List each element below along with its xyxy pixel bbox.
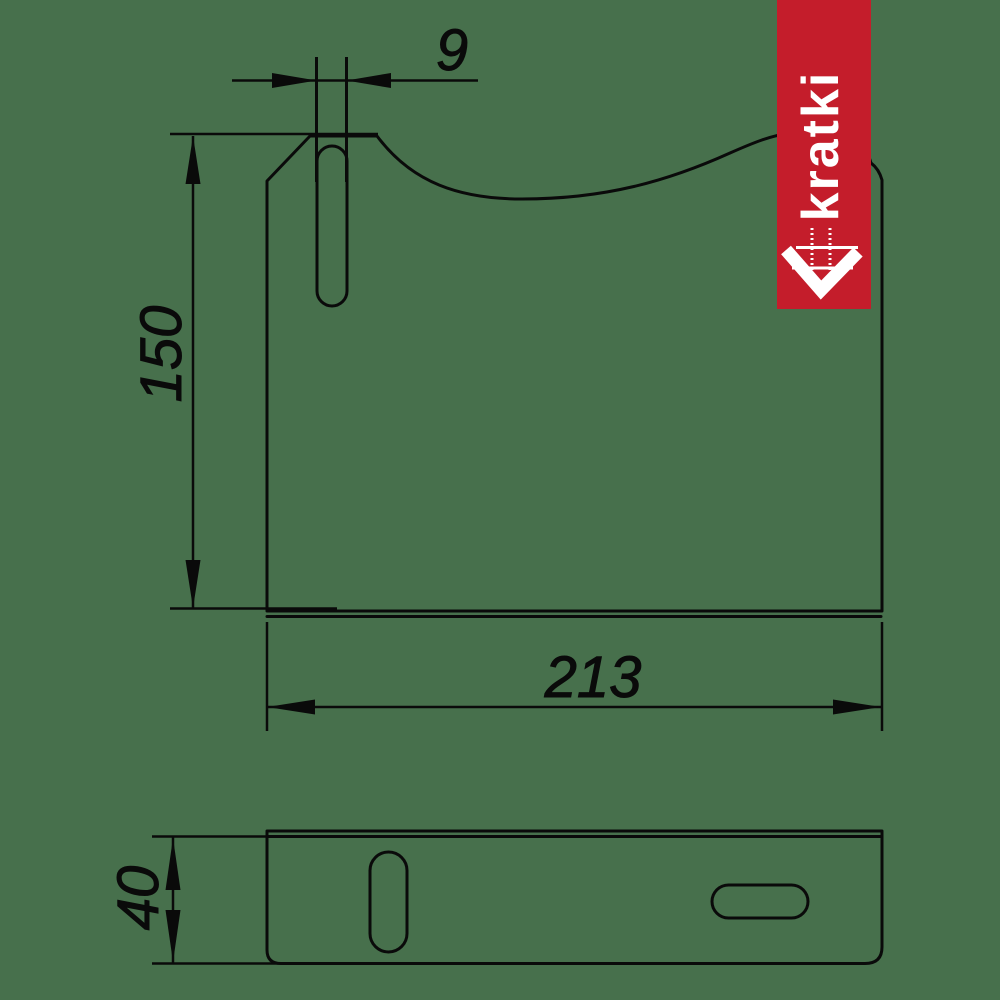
dimension-label-plate-width: 213 [544, 645, 642, 710]
brand-banner: kratki [777, 0, 871, 309]
brand-wordmark: kratki [792, 71, 850, 222]
dimension-label-slot-width: 9 [436, 18, 468, 83]
technical-drawing-canvas: 9 150 213 40 kratki [0, 0, 1000, 1000]
dimension-label-flange-depth: 40 [106, 866, 171, 931]
dimension-label-plate-height: 150 [129, 306, 194, 403]
